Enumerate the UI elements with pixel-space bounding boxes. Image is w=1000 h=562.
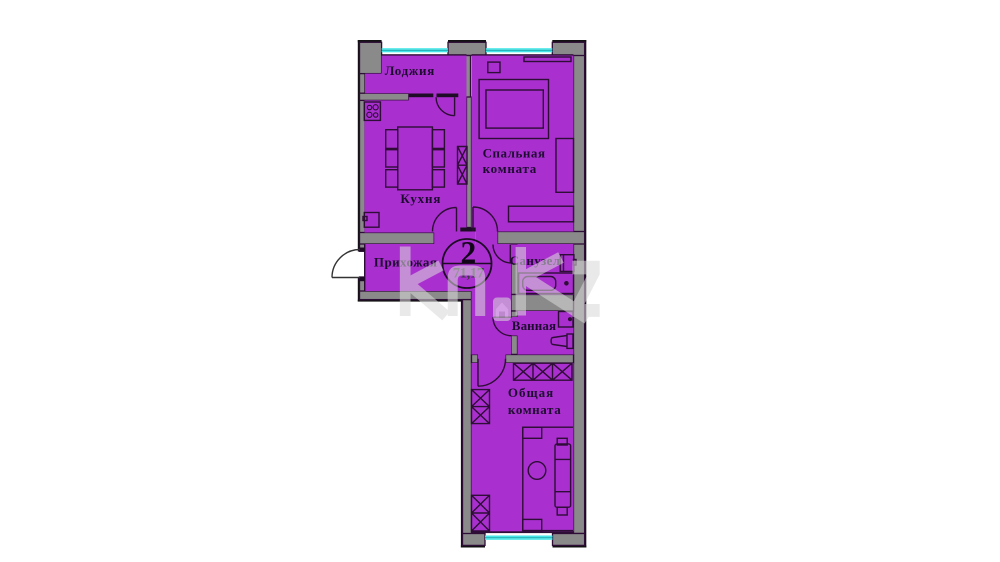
svg-text:Кухня: Кухня — [400, 191, 440, 206]
svg-text:Общая: Общая — [508, 385, 553, 400]
svg-text:Ванная: Ванная — [512, 318, 556, 333]
svg-text:Лоджия: Лоджия — [385, 63, 435, 78]
svg-text:Спальная: Спальная — [483, 146, 545, 161]
svg-text:комната: комната — [483, 161, 537, 176]
svg-text:комната: комната — [508, 402, 561, 417]
